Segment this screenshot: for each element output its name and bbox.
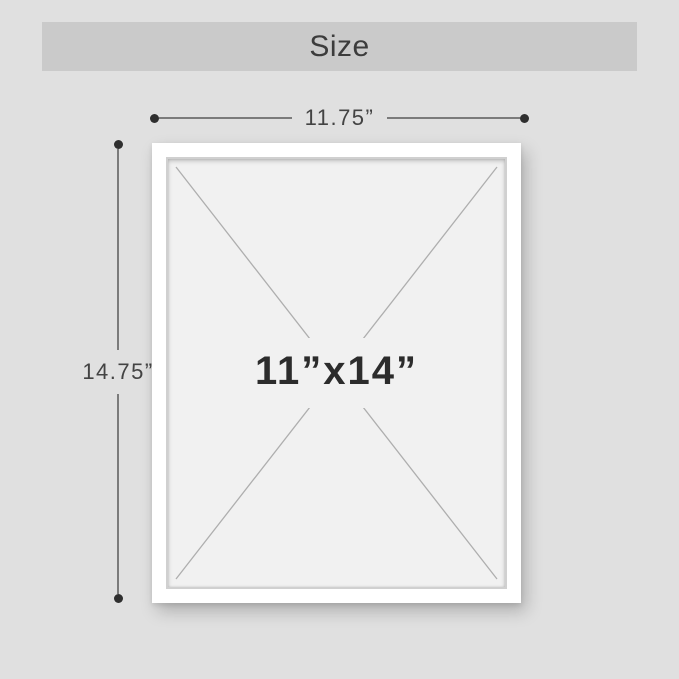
picture-frame: 11”x14” [152,143,521,603]
width-dimension: 11.75” [150,109,529,127]
width-dimension-right-segment [387,117,520,119]
size-banner: Size [42,22,637,71]
height-dimension-label: 14.75” [82,359,153,385]
height-dimension-top-segment [117,149,119,350]
height-dimension-bottom-segment [117,394,119,595]
size-diagram-page: { "title_bar": { "label": "Size" }, "dim… [0,0,679,679]
width-dimension-right-dot [520,114,529,123]
width-dimension-label: 11.75” [292,105,388,131]
height-dimension-bottom-dot [114,594,123,603]
width-dimension-left-dot [150,114,159,123]
size-banner-title: Size [309,30,369,64]
frame-size-label: 11”x14” [168,349,505,394]
height-dimension: 14.75” [83,140,153,603]
width-dimension-left-segment [159,117,292,119]
height-dimension-top-dot [114,140,123,149]
frame-mat: 11”x14” [166,157,507,589]
